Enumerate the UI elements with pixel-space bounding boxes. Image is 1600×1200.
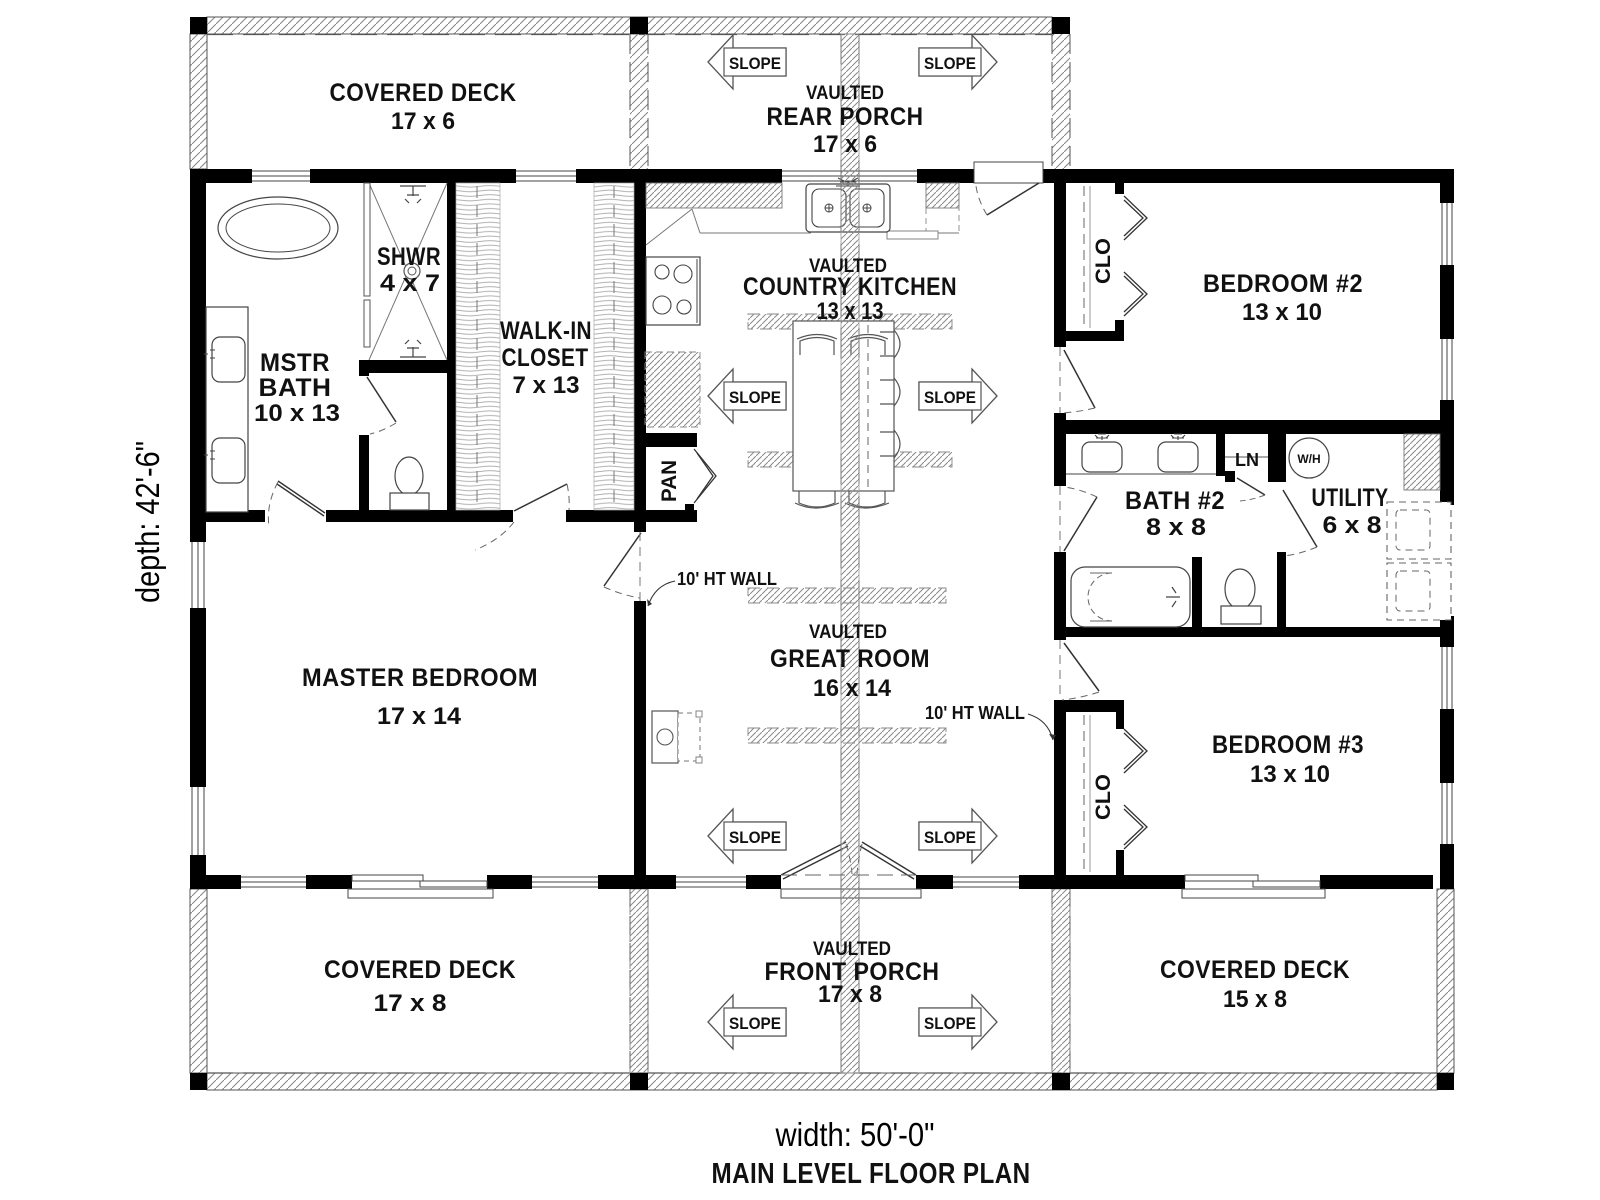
svg-text:PAN: PAN	[658, 460, 681, 502]
svg-text:SHWR: SHWR	[377, 243, 441, 271]
svg-text:10' HT WALL: 10' HT WALL	[925, 703, 1025, 723]
svg-text:BATH #2: BATH #2	[1125, 487, 1225, 515]
svg-text:13 x 13: 13 x 13	[817, 298, 884, 325]
svg-text:13 x 10: 13 x 10	[1242, 299, 1322, 326]
svg-text:depth: 42'-6": depth: 42'-6"	[129, 441, 166, 603]
svg-text:6 x 8: 6 x 8	[1323, 512, 1382, 539]
svg-text:width: 50'-0": width: 50'-0"	[775, 1116, 935, 1153]
svg-text:SLOPE: SLOPE	[924, 54, 976, 73]
svg-text:7 x 13: 7 x 13	[513, 372, 580, 399]
svg-text:CLOSET: CLOSET	[502, 344, 589, 372]
svg-text:COVERED DECK: COVERED DECK	[324, 956, 516, 984]
svg-text:SLOPE: SLOPE	[729, 1014, 781, 1033]
svg-text:17 x 6: 17 x 6	[813, 131, 877, 158]
svg-text:CLO: CLO	[1092, 774, 1115, 820]
svg-text:17 x 8: 17 x 8	[374, 990, 447, 1017]
svg-text:COUNTRY KITCHEN: COUNTRY KITCHEN	[743, 273, 957, 301]
svg-text:VAULTED: VAULTED	[813, 939, 891, 960]
svg-text:VAULTED: VAULTED	[809, 622, 887, 643]
svg-text:SLOPE: SLOPE	[924, 828, 976, 847]
svg-text:CLO: CLO	[1092, 238, 1115, 284]
svg-text:BEDROOM #3: BEDROOM #3	[1212, 731, 1364, 759]
svg-text:COVERED DECK: COVERED DECK	[1160, 956, 1350, 984]
svg-text:COVERED DECK: COVERED DECK	[330, 79, 517, 107]
svg-text:17 x 6: 17 x 6	[391, 108, 455, 135]
svg-text:W/H: W/H	[1297, 452, 1320, 466]
svg-text:BATH: BATH	[259, 374, 332, 402]
svg-text:4 x 7: 4 x 7	[380, 270, 440, 297]
svg-text:17 x 8: 17 x 8	[818, 981, 882, 1008]
svg-text:13 x 10: 13 x 10	[1250, 761, 1330, 788]
svg-text:MASTER BEDROOM: MASTER BEDROOM	[302, 664, 538, 692]
svg-text:REAR PORCH: REAR PORCH	[767, 103, 924, 131]
svg-text:MAIN LEVEL FLOOR PLAN: MAIN LEVEL FLOOR PLAN	[712, 1158, 1031, 1190]
svg-text:15 x 8: 15 x 8	[1223, 986, 1287, 1013]
svg-text:SLOPE: SLOPE	[729, 388, 781, 407]
svg-text:SLOPE: SLOPE	[729, 828, 781, 847]
svg-text:SLOPE: SLOPE	[729, 54, 781, 73]
svg-text:UTILITY: UTILITY	[1312, 484, 1389, 512]
svg-text:17 x 14: 17 x 14	[377, 703, 462, 730]
svg-text:SLOPE: SLOPE	[924, 388, 976, 407]
svg-text:10 x 13: 10 x 13	[254, 400, 340, 427]
svg-text:MSTR: MSTR	[260, 349, 330, 377]
svg-text:VAULTED: VAULTED	[806, 83, 884, 104]
svg-text:GREAT ROOM: GREAT ROOM	[770, 645, 930, 673]
svg-text:10' HT WALL: 10' HT WALL	[677, 569, 777, 589]
svg-text:8 x 8: 8 x 8	[1146, 514, 1206, 541]
svg-text:16 x 14: 16 x 14	[813, 675, 892, 702]
svg-text:BEDROOM #2: BEDROOM #2	[1203, 270, 1363, 298]
svg-text:LN: LN	[1235, 450, 1259, 470]
svg-text:WALK-IN: WALK-IN	[500, 317, 592, 345]
svg-text:SLOPE: SLOPE	[924, 1014, 976, 1033]
